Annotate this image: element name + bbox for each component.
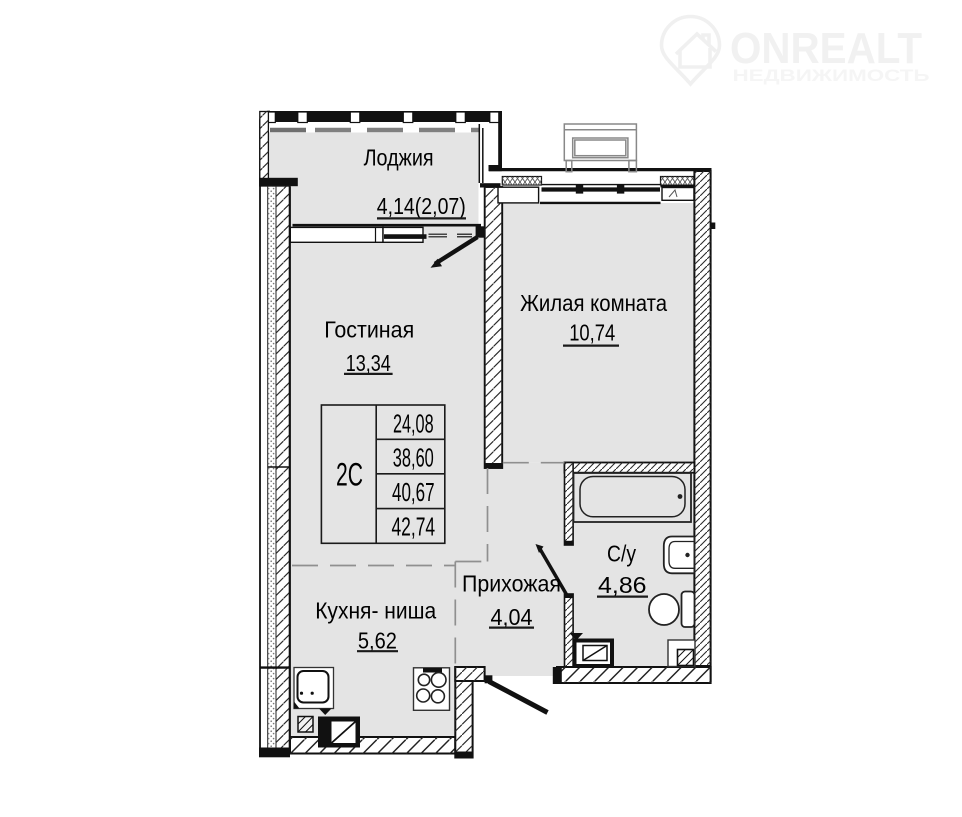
svg-text:38,60: 38,60 bbox=[393, 445, 434, 473]
svg-text:4,14(2,07): 4,14(2,07) bbox=[377, 193, 466, 219]
svg-text:Прихожая: Прихожая bbox=[462, 570, 561, 596]
svg-text:10,74: 10,74 bbox=[569, 319, 615, 345]
svg-text:5,62: 5,62 bbox=[358, 627, 397, 653]
svg-text:24,08: 24,08 bbox=[393, 411, 434, 439]
svg-text:42,74: 42,74 bbox=[391, 514, 435, 542]
svg-text:ONREALT: ONREALT bbox=[730, 24, 922, 73]
svg-text:40,67: 40,67 bbox=[392, 479, 435, 507]
svg-text:Жилая комната: Жилая комната bbox=[520, 290, 668, 316]
svg-text:Лоджия: Лоджия bbox=[364, 145, 434, 171]
svg-text:НЕДВИЖИМОСТЬ: НЕДВИЖИМОСТЬ bbox=[733, 67, 930, 85]
svg-text:13,34: 13,34 bbox=[346, 350, 391, 376]
svg-text:4,04: 4,04 bbox=[491, 604, 533, 630]
svg-text:2С: 2С bbox=[336, 456, 363, 493]
svg-text:Кухня- ниша: Кухня- ниша bbox=[315, 597, 437, 623]
svg-text:4,86: 4,86 bbox=[598, 572, 647, 598]
svg-text:Гостиная: Гостиная bbox=[324, 317, 414, 343]
svg-text:С/у: С/у bbox=[607, 541, 636, 567]
